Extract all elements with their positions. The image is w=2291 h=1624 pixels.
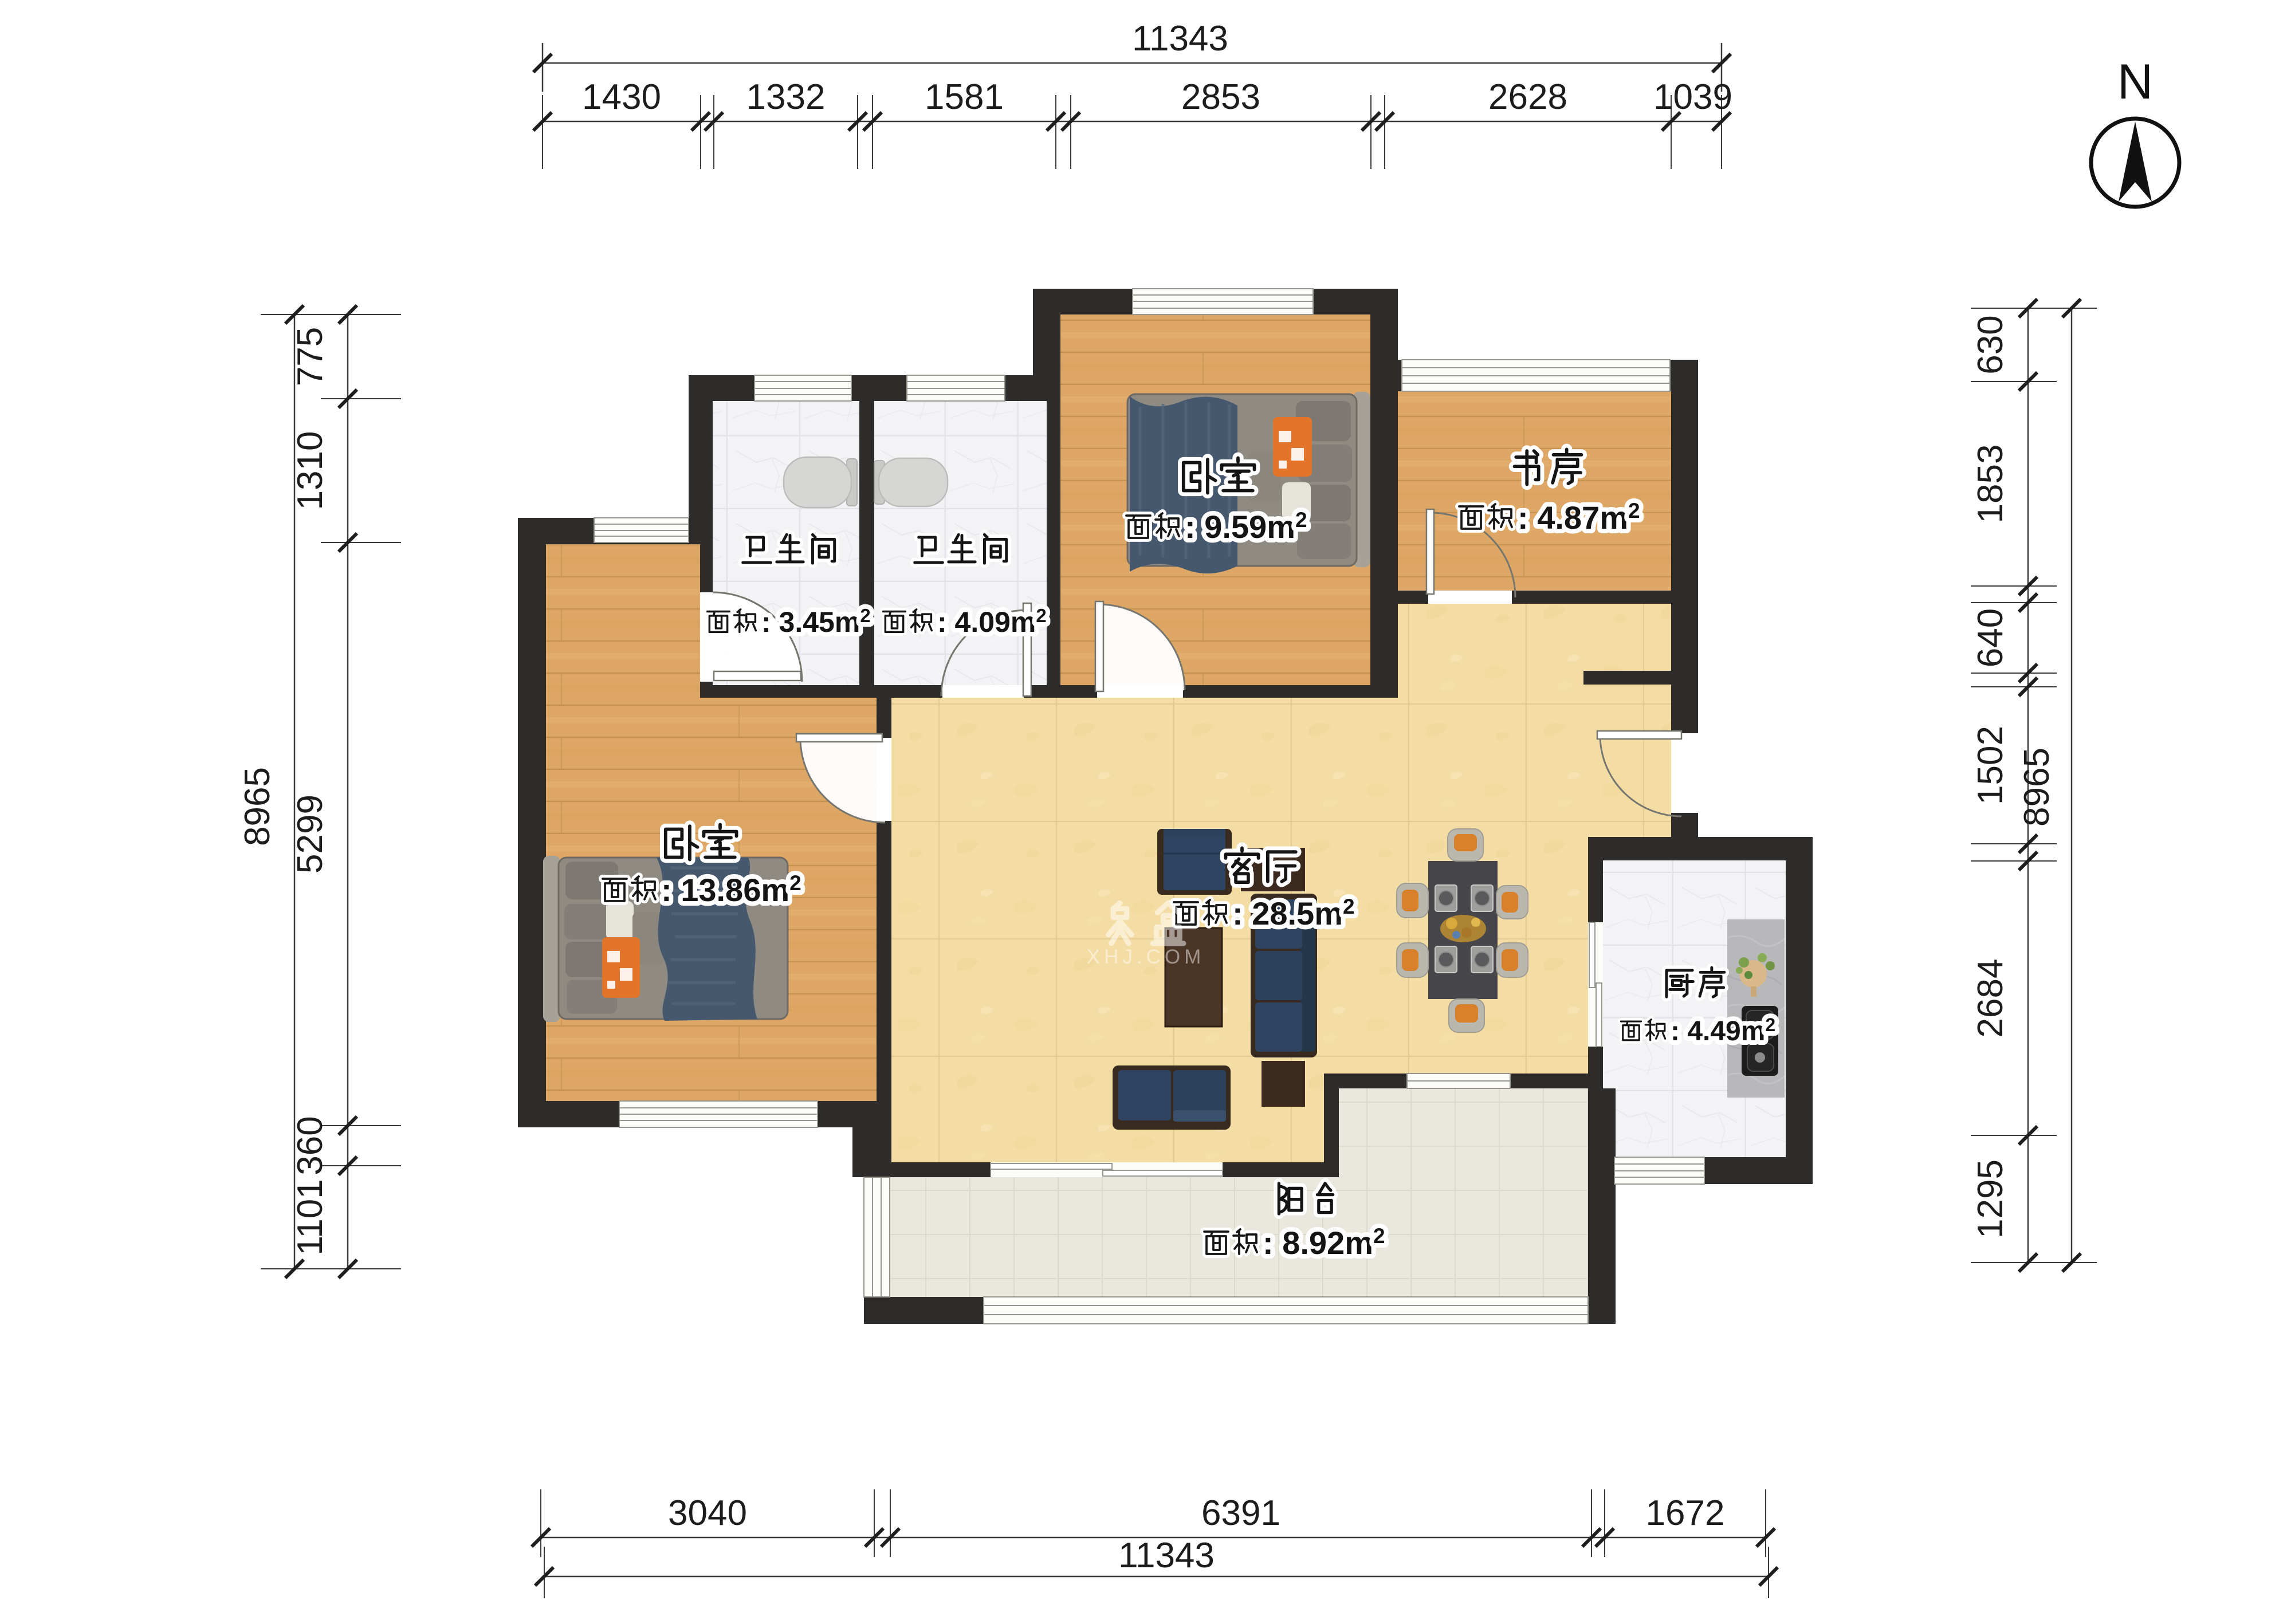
svg-text:1310: 1310: [290, 431, 330, 510]
svg-text:6391: 6391: [1201, 1493, 1280, 1533]
svg-text:: 4.09m2: : 4.09m2: [937, 605, 1047, 638]
svg-text:: 3.45m2: : 3.45m2: [761, 605, 871, 638]
svg-text:8965: 8965: [238, 767, 277, 846]
svg-text:11343: 11343: [1118, 1536, 1215, 1575]
svg-text:1101: 1101: [290, 1179, 330, 1255]
svg-text:640: 640: [1971, 608, 2010, 667]
svg-text:: 4.87m2: : 4.87m2: [1518, 499, 1640, 536]
svg-text:: 28.5m2: : 28.5m2: [1232, 895, 1355, 931]
svg-text:1853: 1853: [1971, 445, 2010, 524]
svg-text:3040: 3040: [668, 1493, 747, 1533]
svg-text:2628: 2628: [1488, 77, 1567, 117]
svg-text:1039: 1039: [1653, 77, 1732, 117]
svg-text:XHJ.COM: XHJ.COM: [1087, 946, 1205, 968]
svg-text:1332: 1332: [746, 77, 826, 117]
svg-text:1430: 1430: [582, 77, 661, 117]
svg-text:8965: 8965: [2017, 748, 2057, 827]
svg-text:11343: 11343: [1132, 19, 1228, 58]
svg-text:360: 360: [290, 1116, 330, 1175]
svg-text:2853: 2853: [1181, 77, 1260, 117]
svg-text:5299: 5299: [290, 795, 330, 874]
svg-text:2684: 2684: [1971, 959, 2010, 1038]
svg-text:775: 775: [290, 327, 330, 386]
svg-text:: 8.92m2: : 8.92m2: [1263, 1224, 1385, 1261]
svg-text:: 4.49m2: : 4.49m2: [1671, 1014, 1775, 1047]
svg-text:N: N: [2117, 54, 2153, 109]
svg-text:1581: 1581: [925, 77, 1004, 117]
svg-text:630: 630: [1971, 315, 2010, 374]
svg-text:1295: 1295: [1971, 1159, 2010, 1238]
svg-text:: 13.86m2: : 13.86m2: [661, 871, 801, 908]
svg-text:: 9.59m2: : 9.59m2: [1185, 508, 1307, 545]
svg-text:1502: 1502: [1971, 726, 2010, 805]
svg-text:1672: 1672: [1646, 1493, 1725, 1533]
